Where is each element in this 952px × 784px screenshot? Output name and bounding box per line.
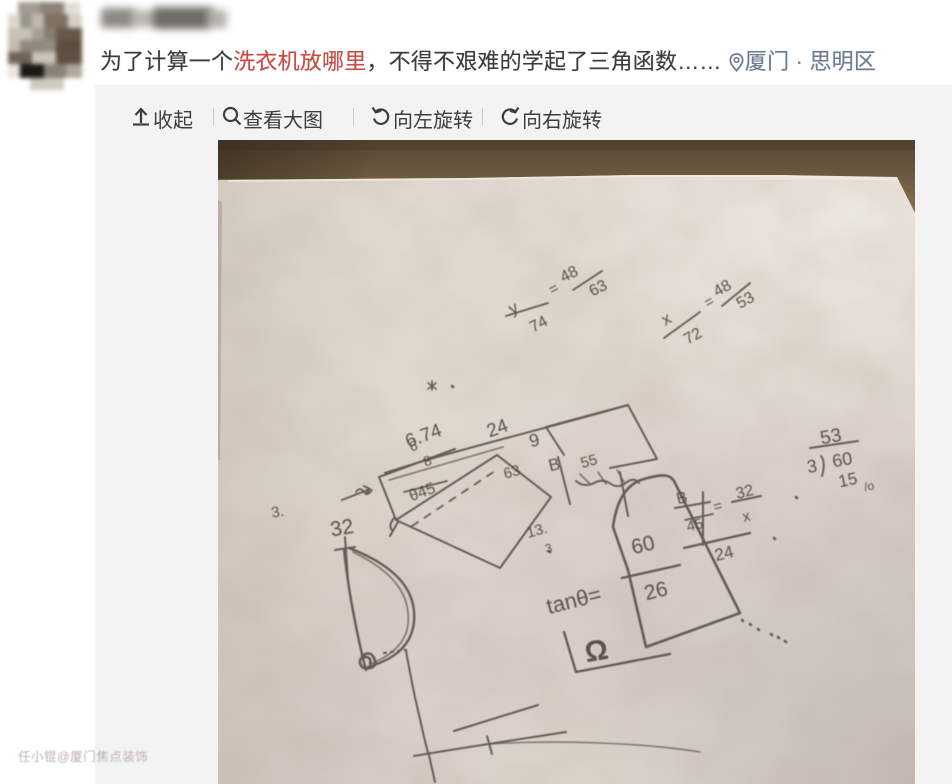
svg-text:53: 53 bbox=[819, 425, 843, 449]
svg-text:60: 60 bbox=[831, 448, 854, 471]
svg-text:32: 32 bbox=[329, 515, 356, 542]
svg-text:15: 15 bbox=[837, 469, 859, 492]
